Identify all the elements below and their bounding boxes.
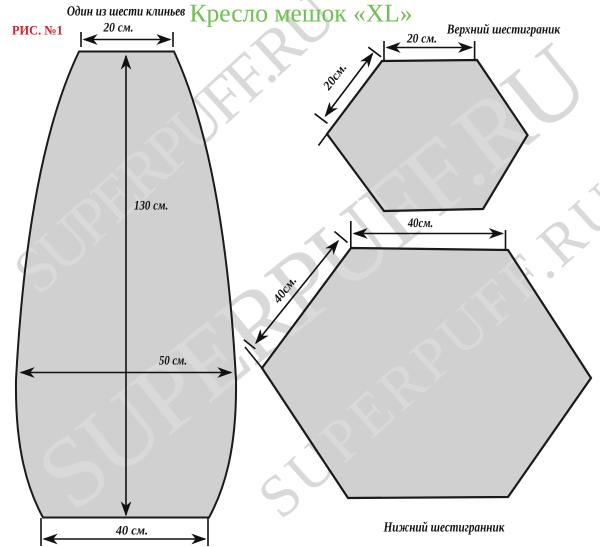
svg-text:Нижний шестигранник: Нижний шестигранник — [383, 521, 505, 536]
svg-text:Кресло мешок «XL»: Кресло мешок «XL» — [190, 0, 413, 28]
svg-text:40 см.: 40 см. — [115, 523, 148, 538]
svg-text:40см.: 40см. — [407, 215, 433, 230]
svg-text:Один из шести клиньев: Один из шести клиньев — [67, 5, 186, 20]
svg-text:20 см.: 20 см. — [406, 31, 437, 46]
svg-text:Верхний шестиграник: Верхний шестиграник — [446, 22, 561, 37]
svg-text:50 см.: 50 см. — [159, 353, 187, 368]
svg-text:20 см.: 20 см. — [103, 20, 134, 35]
svg-text:РИС. №1: РИС. №1 — [12, 23, 63, 38]
svg-text:130 см.: 130 см. — [134, 198, 168, 213]
